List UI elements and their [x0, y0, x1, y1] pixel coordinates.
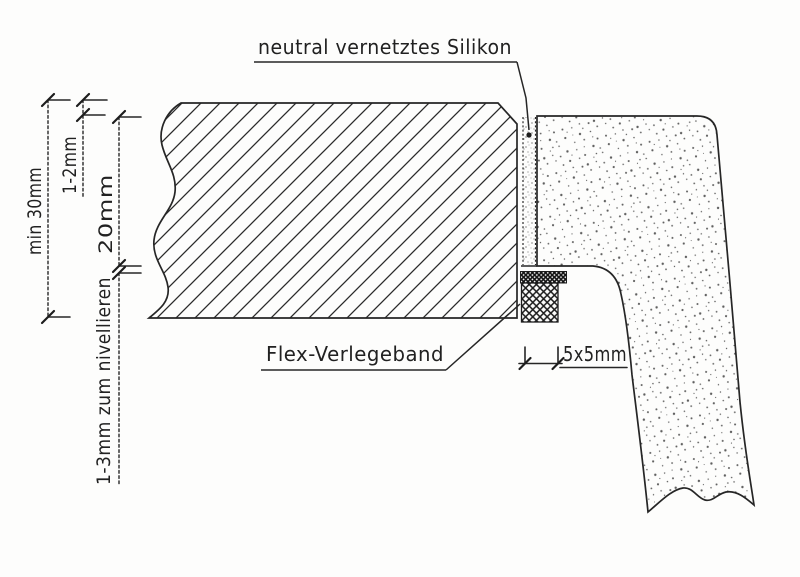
adhesive-band-rect: [521, 272, 567, 284]
adhesive-band: [521, 272, 567, 284]
countertop-section: [149, 103, 517, 318]
thickness-dim-label: min 30mm: [24, 167, 46, 255]
drawing-svg: neutral vernetztes Silikon Flex-Verlegeb…: [0, 0, 800, 577]
countertop-outline: [149, 103, 517, 318]
topgap-dim-label: 1-2mm: [59, 136, 81, 194]
silicone-fill: [523, 117, 536, 265]
flex-tape-callout-label: Flex-Verlegeband: [266, 342, 444, 366]
tape-dim-label: 5x5mm: [563, 342, 627, 366]
rim-dim-label: 20mm: [95, 174, 117, 254]
flex-tape-rect: [522, 283, 559, 322]
flex-tape-block: [522, 283, 559, 322]
leveling-dim-label: 1-3mm zum nivellieren: [93, 277, 115, 485]
leader-end-dot: [526, 132, 531, 137]
scanned-technical-drawing: neutral vernetztes Silikon Flex-Verlegeb…: [0, 0, 800, 577]
silicone-callout-label: neutral vernetztes Silikon: [258, 35, 512, 59]
silicone-joint: [523, 117, 536, 265]
